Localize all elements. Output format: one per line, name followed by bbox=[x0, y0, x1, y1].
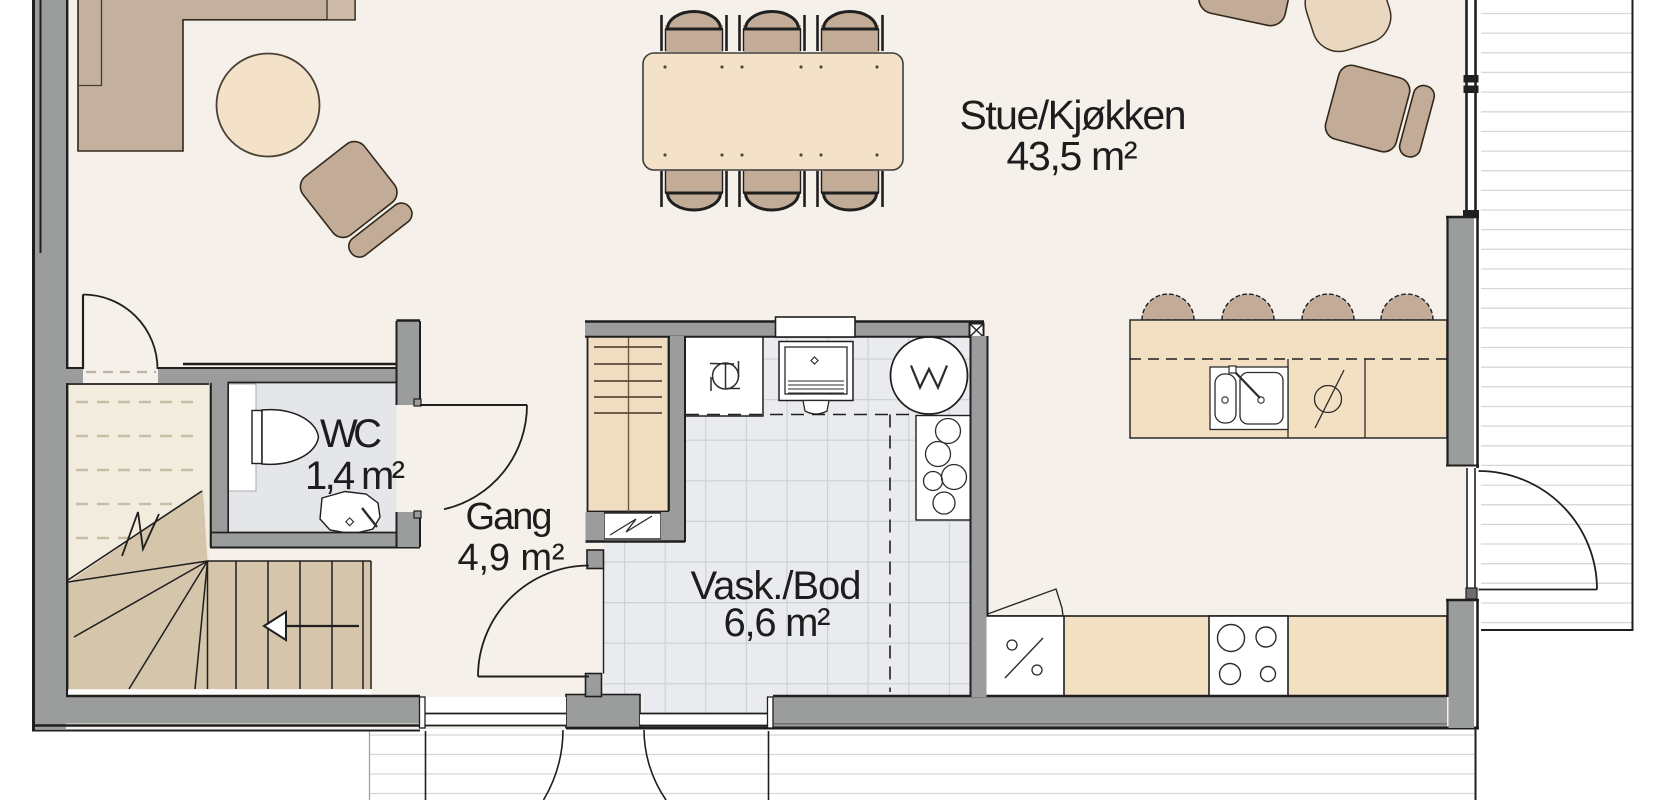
svg-text:43,5 m²: 43,5 m² bbox=[1007, 133, 1138, 179]
svg-text:6,6 m²: 6,6 m² bbox=[724, 601, 831, 645]
svg-text:Stue/Kjøkken: Stue/Kjøkken bbox=[960, 92, 1187, 138]
svg-text:WC: WC bbox=[320, 412, 382, 456]
svg-text:Gang: Gang bbox=[466, 496, 553, 538]
svg-text:4,9 m²: 4,9 m² bbox=[458, 537, 565, 579]
svg-text:1,4 m²: 1,4 m² bbox=[305, 454, 405, 498]
